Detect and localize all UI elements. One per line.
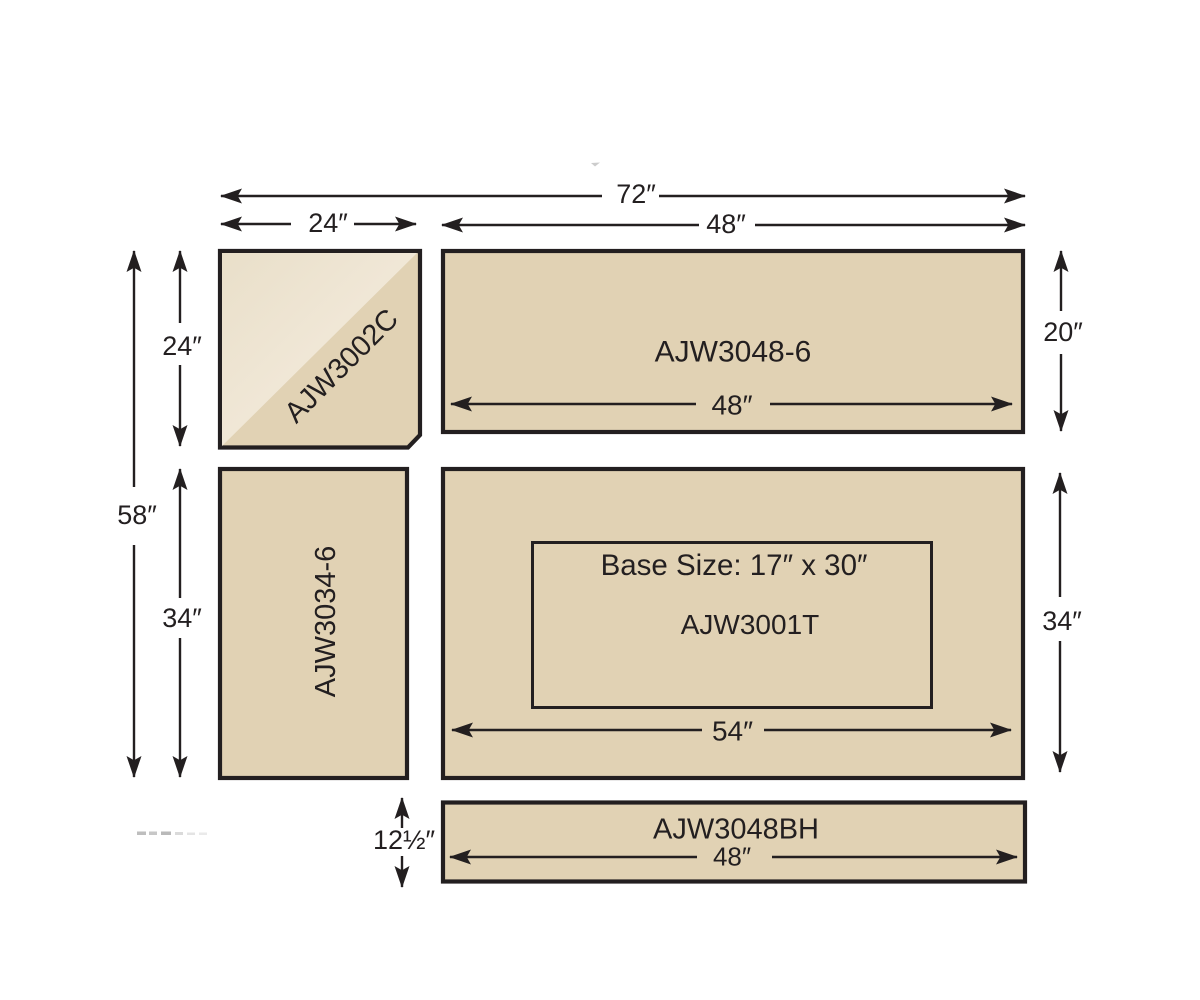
svg-text:48″: 48″ bbox=[713, 842, 751, 872]
svg-text:Base Size: 17″ x 30″: Base Size: 17″ x 30″ bbox=[601, 549, 868, 582]
svg-text:34″: 34″ bbox=[162, 603, 202, 633]
svg-text:20″: 20″ bbox=[1043, 317, 1083, 347]
svg-text:58″: 58″ bbox=[117, 500, 157, 530]
svg-text:54″: 54″ bbox=[712, 716, 753, 747]
svg-text:12½″: 12½″ bbox=[373, 825, 436, 855]
svg-text:48″: 48″ bbox=[706, 209, 746, 239]
svg-text:24″: 24″ bbox=[308, 208, 348, 238]
svg-text:24″: 24″ bbox=[162, 331, 202, 361]
svg-text:AJW3001T: AJW3001T bbox=[681, 609, 820, 640]
svg-text:AJW3034-6: AJW3034-6 bbox=[310, 546, 342, 698]
svg-text:AJW3048-6: AJW3048-6 bbox=[655, 336, 812, 369]
svg-text:48″: 48″ bbox=[711, 390, 752, 421]
svg-text:72″: 72″ bbox=[616, 179, 656, 209]
svg-text:34″: 34″ bbox=[1042, 606, 1082, 636]
